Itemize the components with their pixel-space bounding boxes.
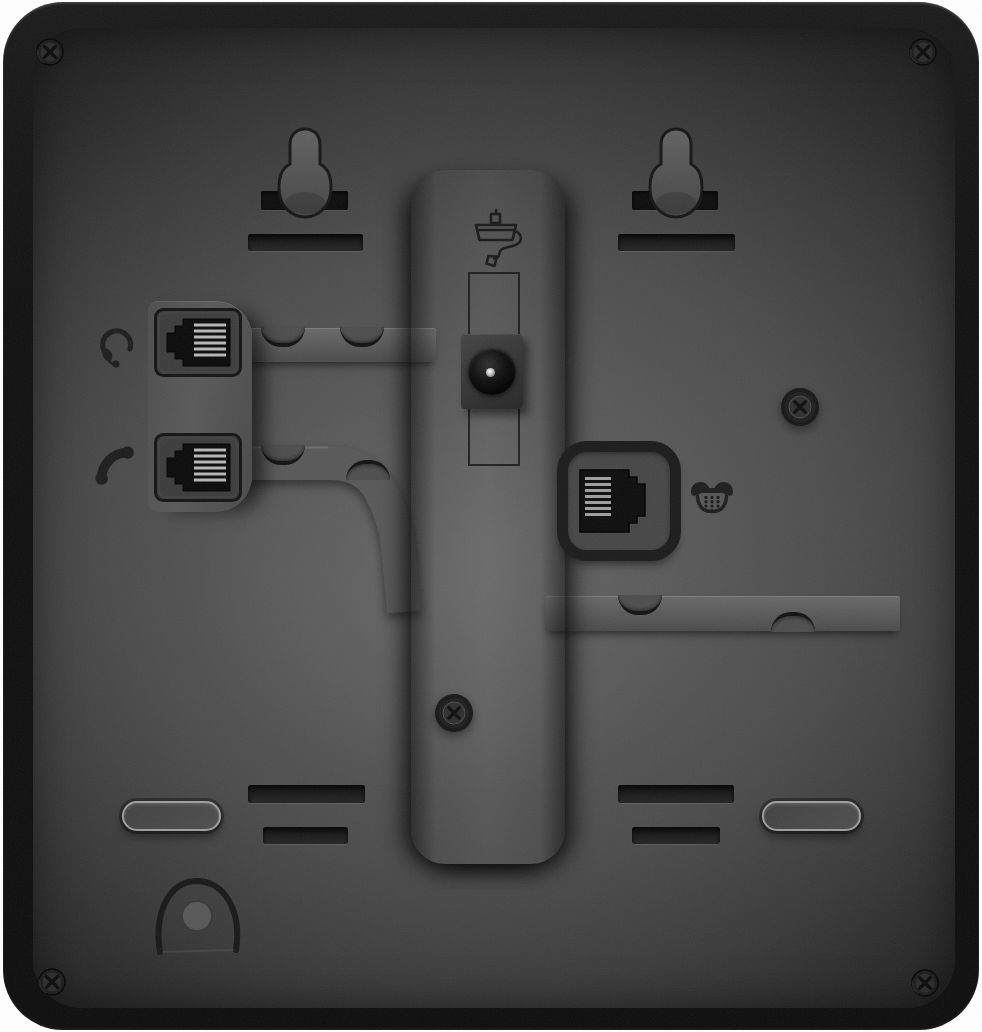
screw-bottom-left [38,968,66,996]
screw-top-right [909,38,937,66]
line-port [569,464,657,538]
cable-notch [261,327,305,347]
headset-cable-channel [244,328,436,362]
phone-rear-photo [0,0,982,1032]
stand-slot-lower-right [632,827,720,844]
cable-anchor-hook [150,872,246,956]
keyhole-right [648,127,704,221]
handset-icon [93,444,141,488]
cable-notch [618,595,662,615]
wall-mount-slot-right [618,234,735,251]
cable-notch [340,327,384,347]
cable-notch [771,612,815,632]
rubber-foot-left [122,801,221,831]
headset-port [154,308,242,377]
telephone-icon [686,480,738,518]
wall-mount-slot-left [248,234,363,251]
rubber-foot-right [762,801,861,831]
phone-body [3,2,979,1030]
headset-icon [99,322,139,368]
line-cable-channel [545,596,900,631]
power-adapter-icon [469,209,523,267]
handset-port [154,433,242,502]
stand-slot-lower-left [263,827,348,844]
screw-mid-right [780,387,820,427]
stand-slot-upper-right [618,785,734,803]
screw-center [434,693,474,733]
stand-slot-upper-left [248,785,365,803]
screw-bottom-right [911,969,939,997]
dc-center-pin [486,368,495,377]
line-port-bezel [557,441,681,561]
screw-top-left [36,38,64,66]
keyhole-left [277,127,333,221]
